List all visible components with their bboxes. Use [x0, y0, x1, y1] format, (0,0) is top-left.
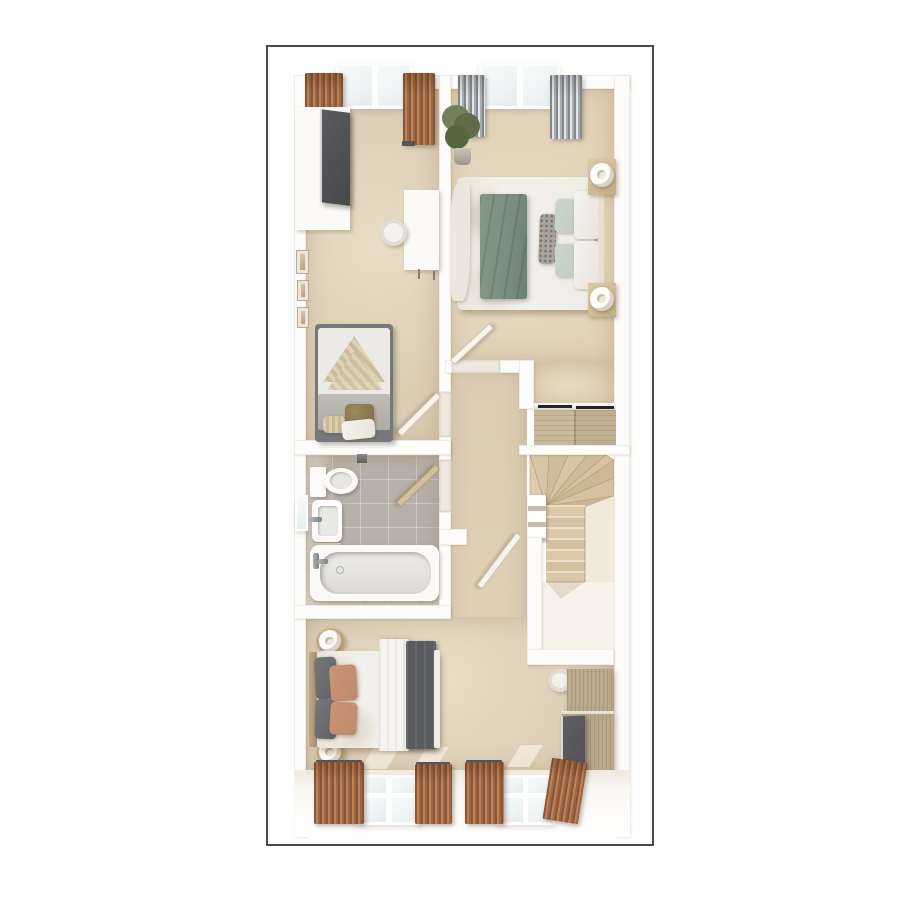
- white-pillow: [574, 191, 600, 239]
- wall-landing-stub: [439, 529, 467, 545]
- toilet-bowl: [324, 468, 358, 494]
- wall-stairs-bottom: [527, 649, 614, 665]
- draped-sheet: [450, 183, 470, 301]
- wall-divider-lower: [439, 512, 451, 617]
- rust-pillow: [329, 701, 358, 735]
- wall-picture: [297, 280, 309, 301]
- green-throw: [480, 194, 527, 299]
- floor-plan-figure: [266, 45, 654, 846]
- curtain-bottom-2: [415, 764, 452, 824]
- table-lamp: [590, 163, 614, 187]
- white-cushion: [341, 418, 376, 440]
- desk-chair: [380, 219, 407, 246]
- stair-straight-flight: [546, 506, 585, 582]
- wall-picture: [297, 307, 309, 328]
- dark-gray-throw: [406, 641, 436, 749]
- bathtub: [310, 545, 439, 601]
- window-bedroom-1: [479, 63, 560, 109]
- wall-bathroom-top: [294, 440, 451, 455]
- wall-alcove-bottom: [519, 445, 630, 455]
- plant-pot: [454, 148, 471, 165]
- single-bed: [315, 324, 393, 442]
- desk-leg: [418, 269, 420, 279]
- curtain-tieback: [402, 141, 415, 146]
- wall-right: [614, 75, 630, 837]
- wall-alcove-left: [519, 360, 534, 409]
- window-bottom-left: [356, 775, 422, 825]
- sink-tap: [309, 517, 322, 522]
- doorway-bedroom-3: [439, 392, 451, 437]
- doorway-bedroom-1: [452, 360, 500, 373]
- wall-picture: [296, 250, 309, 274]
- bath-drain: [336, 566, 344, 574]
- desk-leg: [433, 271, 435, 280]
- dresser-top-cabinet: [567, 669, 613, 715]
- bath-mixer: [318, 559, 328, 564]
- wardrobe-door-right: [576, 410, 616, 445]
- folded-white-blanket: [379, 639, 409, 751]
- stair-banister: [528, 495, 546, 541]
- wardrobe-rail-bar: [538, 405, 572, 408]
- curtain-brown-right: [403, 73, 435, 145]
- page-background: [0, 0, 900, 900]
- table-lamp: [319, 630, 341, 652]
- wardrobe-rail-bar: [576, 406, 614, 409]
- window-bedroom-3: [336, 63, 413, 109]
- rust-pillow: [329, 664, 358, 702]
- curtain-bottom-3: [465, 762, 504, 824]
- white-pillow: [574, 241, 600, 289]
- wall-bathroom-bottom: [294, 605, 451, 619]
- curtain-gray-right: [550, 75, 582, 139]
- stairwell-side-face: [585, 496, 614, 582]
- doorway-bathroom: [439, 460, 451, 512]
- desk: [404, 190, 439, 270]
- toilet-bowl-inner: [330, 472, 352, 489]
- table-lamp: [590, 287, 614, 311]
- wardrobe-bedroom-3-front: [320, 109, 350, 206]
- plant-foliage: [445, 125, 469, 149]
- bed-foot-edge: [434, 650, 440, 748]
- window-bathroom: [295, 495, 308, 531]
- towel-hook: [357, 454, 367, 463]
- curtain-bottom-1: [314, 762, 364, 824]
- room-bedroom-1-alcove-floor: [527, 363, 614, 407]
- wall-stairs-left: [527, 537, 542, 665]
